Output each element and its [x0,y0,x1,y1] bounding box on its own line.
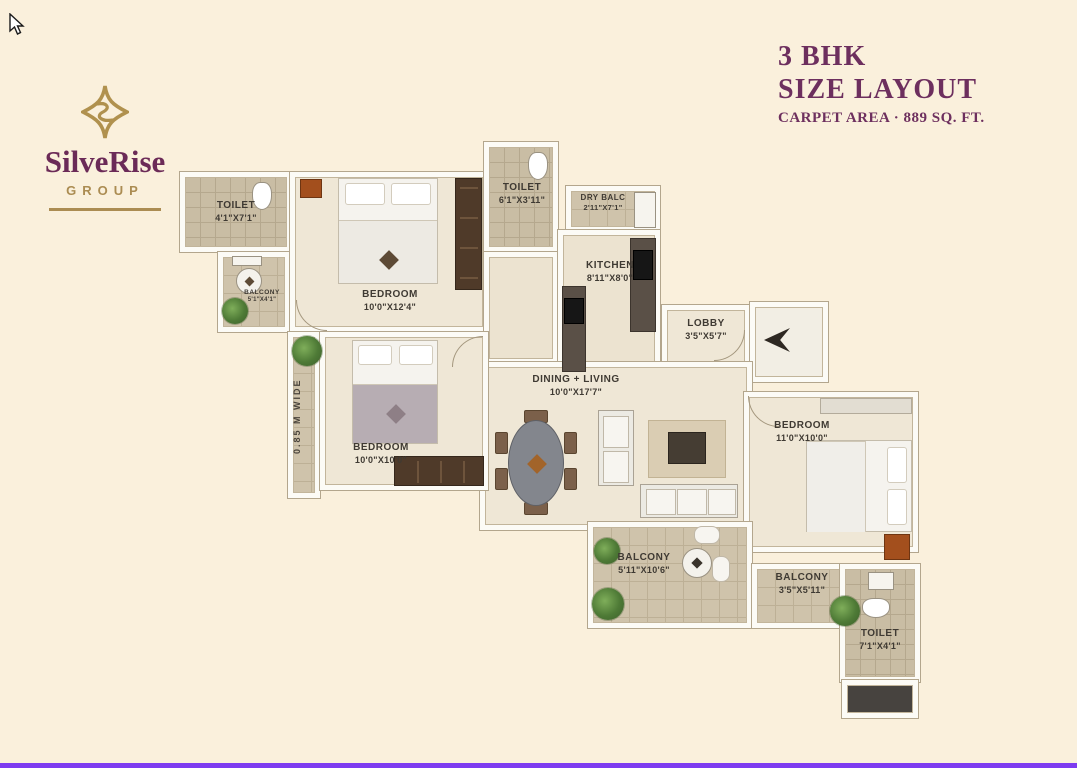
nightstand [884,534,910,560]
sofa-three-seater [640,484,738,518]
dining-chair [495,468,508,490]
label-dry-balcony: DRY BALC 2'11"X7'1" [570,193,636,212]
stove-icon [564,298,584,324]
label-bedroom-3: BEDROOM 11'0"X10'0" [750,420,854,444]
label-dining-living: DINING + LIVING 10'0"X17'7" [506,374,646,398]
washbasin-icon [868,572,894,590]
balcony-shelf [232,256,262,266]
plant-icon [592,588,624,620]
wardrobe [455,178,482,290]
brand-name: SilveRise [38,146,172,177]
title-line-2: SIZE LAYOUT [778,73,985,106]
label-balcony-small: BALCONY 5'1"X4'1" [234,289,290,305]
dining-table [508,420,564,506]
plan-title: 3 BHK SIZE LAYOUT CARPET AREA · 889 SQ. … [778,40,985,127]
sink-icon [634,192,656,228]
sofa-two-seater [598,410,634,486]
mouse-cursor-icon [8,13,28,37]
bed [352,340,438,444]
bed [338,178,438,284]
logo-underline [49,208,161,211]
toilet-fixture-icon [862,598,890,618]
label-balcony-2: BALCONY 3'5"X5'11" [750,572,854,596]
title-line-1: 3 BHK [778,40,985,73]
bed [806,440,912,532]
coffee-table [668,432,706,464]
label-lobby: LOBBY 3'5"X5'7" [668,318,744,342]
company-logo: SilveRise GROUP [38,84,172,211]
dining-chair [564,468,577,490]
bottom-bar [0,763,1077,768]
toilet-fixture-icon [528,152,548,180]
carpet-area-text: CARPET AREA · 889 SQ. FT. [778,110,985,127]
label-toilet-2: TOILET 6'1"X3'11" [486,182,558,206]
duct-shaft [842,680,918,718]
dining-chair [564,432,577,454]
brand-subtitle: GROUP [38,183,172,198]
wardrobe [820,398,912,414]
label-bedroom-2: BEDROOM 10'0"X10'0" [326,442,436,466]
label-bedroom-1: BEDROOM 10'0"X12'4" [330,289,450,313]
label-balcony-1: BALCONY 5'11"X10'6" [594,552,694,576]
label-kitchen: KITCHEN 8'11"X8'0" [566,260,654,284]
plant-icon [830,596,860,626]
logo-star-icon [81,84,129,140]
passage-width-note: 0.85 M WIDE [292,352,314,480]
room-entry [750,302,828,382]
label-toilet-1: TOILET 4'1"X7'1" [186,200,286,224]
nightstand [300,179,322,198]
dining-chair [495,432,508,454]
balcony-chair [712,556,730,582]
label-toilet-3: TOILET 7'1"X4'1" [846,628,914,652]
room-corridor [484,252,558,364]
page: SilveRise GROUP 3 BHK SIZE LAYOUT CARPET… [0,0,1077,768]
balcony-chair [694,526,720,544]
